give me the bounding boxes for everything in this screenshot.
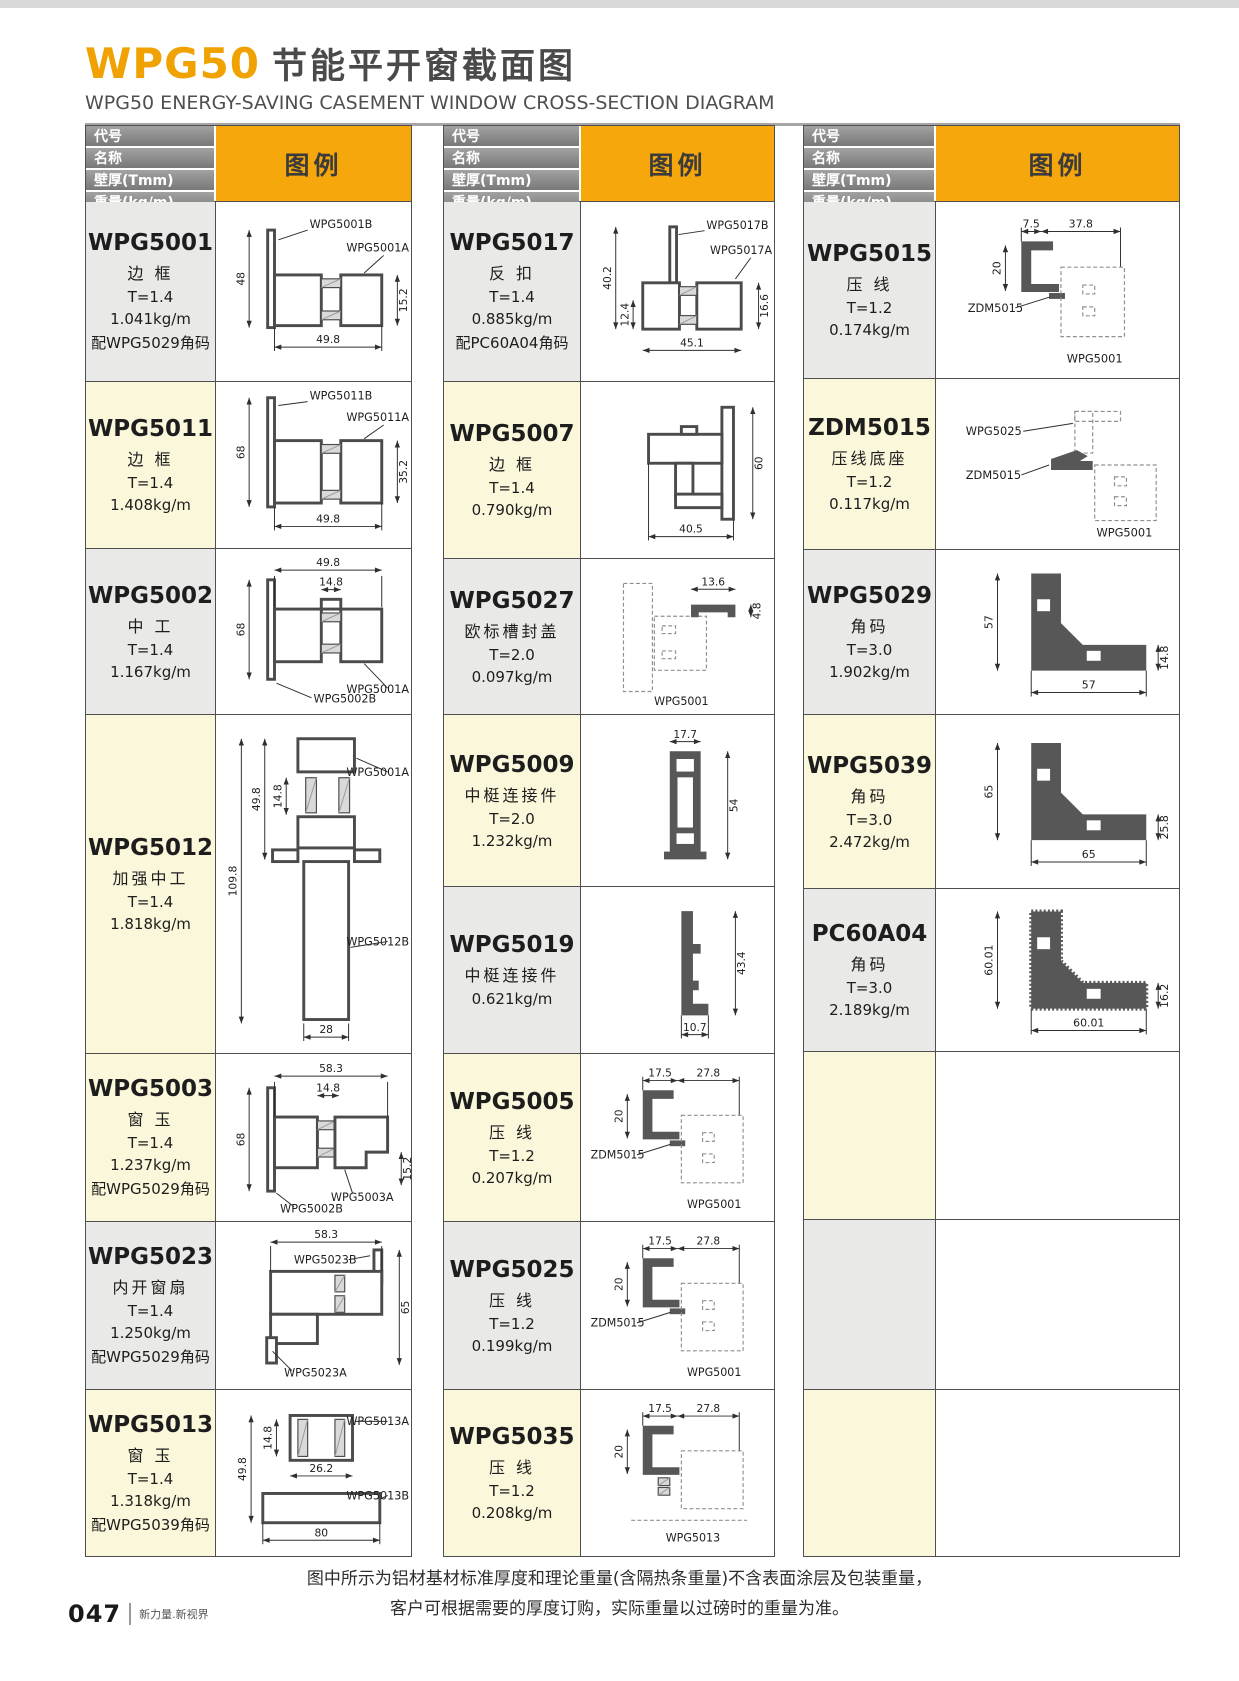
svg-text:57: 57 bbox=[1082, 679, 1096, 692]
page-subtitle: WPG50 ENERGY-SAVING CASEMENT WINDOW CROS… bbox=[85, 92, 1180, 114]
profile-info-cell: PC60A04角码T=3.02.189kg/m bbox=[804, 889, 936, 1051]
profile-info-cell bbox=[804, 1390, 936, 1556]
header-label-cells: 代号名称壁厚(Tmm)重量(kg/m) bbox=[804, 126, 936, 201]
profile-code: WPG5029 bbox=[807, 583, 932, 609]
profile-thickness: T=1.2 bbox=[847, 299, 893, 317]
profile-info-cell: WPG5007边 框T=1.40.790kg/m bbox=[444, 382, 581, 558]
profile-code: WPG5012 bbox=[88, 835, 213, 861]
profile-weight: 0.174kg/m bbox=[829, 321, 910, 339]
profile-name: 窗 玉 bbox=[127, 1442, 173, 1466]
profile-code: WPG5039 bbox=[807, 753, 932, 779]
profile-name: 角码 bbox=[850, 783, 888, 807]
profile-code: WPG5013 bbox=[88, 1412, 213, 1438]
svg-text:WPG5013B: WPG5013B bbox=[346, 1489, 409, 1502]
table-header: 代号名称壁厚(Tmm)重量(kg/m)图例 bbox=[86, 126, 411, 201]
svg-text:WPG5011B: WPG5011B bbox=[310, 390, 373, 403]
profile-thickness: T=1.4 bbox=[128, 474, 174, 492]
svg-text:58.3: 58.3 bbox=[314, 1228, 338, 1241]
svg-text:WPG5001A: WPG5001A bbox=[346, 683, 409, 696]
profile-thickness: T=3.0 bbox=[847, 811, 893, 829]
svg-text:54: 54 bbox=[727, 798, 740, 812]
profile-name: 反 扣 bbox=[489, 260, 535, 284]
svg-text:WPG5001A: WPG5001A bbox=[346, 242, 409, 255]
profile-info-cell: WPG5035压 线T=1.20.208kg/m bbox=[444, 1390, 581, 1556]
svg-text:20: 20 bbox=[612, 1277, 625, 1291]
svg-text:49.8: 49.8 bbox=[316, 333, 340, 346]
top-strip bbox=[0, 0, 1239, 8]
svg-text:40.2: 40.2 bbox=[601, 266, 614, 290]
profile-row: ZDM5015压线底座T=1.20.117kg/mWPG5025ZDM5015W… bbox=[804, 378, 1179, 549]
profile-info-cell: WPG5019中梃连接件0.621kg/m bbox=[444, 887, 581, 1053]
svg-text:14.8: 14.8 bbox=[316, 1082, 340, 1095]
profile-row: WPG5012加强中工T=1.41.818kg/m109.849.814.828… bbox=[86, 714, 411, 1053]
svg-text:28: 28 bbox=[319, 1023, 333, 1036]
header-cell: 代号 bbox=[804, 126, 934, 148]
profile-code: WPG5019 bbox=[449, 932, 574, 958]
header-cell: 壁厚(Tmm) bbox=[804, 170, 934, 192]
profile-code: PC60A04 bbox=[812, 921, 928, 947]
profile-name: 窗 玉 bbox=[127, 1106, 173, 1130]
profile-table-1: 代号名称壁厚(Tmm)重量(kg/m)图例WPG5001边 框T=1.41.04… bbox=[85, 125, 412, 1557]
header-cell: 壁厚(Tmm) bbox=[444, 170, 579, 192]
profile-name: 中梃连接件 bbox=[464, 962, 559, 986]
svg-text:WPG5001: WPG5001 bbox=[654, 695, 708, 708]
cross-section-diagram: 17.527.820WPG5013 bbox=[581, 1390, 774, 1556]
catalog-page: WPG50 节能平开窗截面图 WPG50 ENERGY-SAVING CASEM… bbox=[0, 0, 1239, 1681]
profile-info-cell: WPG5002中 工T=1.41.167kg/m bbox=[86, 549, 216, 714]
profile-corner-note: 配PC60A04角码 bbox=[456, 332, 569, 353]
profile-thickness: T=3.0 bbox=[847, 979, 893, 997]
profile-row: WPG5007边 框T=1.40.790kg/m6040.5 bbox=[444, 381, 774, 558]
profile-info-cell: WPG5029角码T=3.01.902kg/m bbox=[804, 550, 936, 714]
cross-section-diagram: 58.365WPG5023BWPG5023A bbox=[216, 1222, 411, 1389]
svg-text:65: 65 bbox=[983, 785, 996, 799]
profile-code: WPG5017 bbox=[449, 230, 574, 256]
svg-text:60.01: 60.01 bbox=[1073, 1017, 1104, 1030]
svg-text:27.8: 27.8 bbox=[697, 1067, 721, 1080]
profile-name: 压 线 bbox=[489, 1454, 535, 1478]
svg-text:60: 60 bbox=[752, 456, 765, 470]
profile-thickness: T=1.4 bbox=[128, 893, 174, 911]
svg-text:WPG5023B: WPG5023B bbox=[294, 1254, 357, 1267]
profile-weight: 0.097kg/m bbox=[472, 668, 553, 686]
svg-text:65: 65 bbox=[1082, 848, 1096, 861]
profile-info-cell: WPG5001边 框T=1.41.041kg/m配WPG5029角码 bbox=[86, 202, 216, 381]
svg-text:17.5: 17.5 bbox=[648, 1235, 672, 1248]
cross-section-diagram: 40.212.445.116.6WPG5017BWPG5017A bbox=[581, 202, 774, 381]
page-title: 节能平开窗截面图 bbox=[272, 38, 576, 89]
cross-section-diagram: 49.814.868WPG5002BWPG5001A bbox=[216, 549, 411, 714]
header-cell: 名称 bbox=[804, 148, 934, 170]
profile-weight: 1.818kg/m bbox=[110, 915, 191, 933]
cross-section-diagram: 13.64.8WPG5001 bbox=[581, 559, 774, 714]
svg-text:16.2: 16.2 bbox=[1158, 984, 1171, 1008]
svg-text:49.8: 49.8 bbox=[250, 787, 263, 811]
svg-text:49.8: 49.8 bbox=[316, 556, 340, 569]
profile-weight: 0.199kg/m bbox=[472, 1337, 553, 1355]
profile-row: WPG5005压 线T=1.20.207kg/m17.527.820ZDM501… bbox=[444, 1053, 774, 1221]
profile-code: ZDM5015 bbox=[808, 415, 931, 441]
profile-name: 边 框 bbox=[489, 451, 535, 475]
profile-name: 压线底座 bbox=[831, 445, 907, 469]
profile-name: 角码 bbox=[850, 951, 888, 975]
profile-name: 内开窗扇 bbox=[112, 1274, 188, 1298]
svg-text:WPG5001: WPG5001 bbox=[687, 1198, 741, 1211]
legend-header: 图例 bbox=[216, 126, 411, 201]
profile-weight: 1.041kg/m bbox=[110, 310, 191, 328]
table-header: 代号名称壁厚(Tmm)重量(kg/m)图例 bbox=[444, 126, 774, 201]
svg-text:60.01: 60.01 bbox=[983, 944, 996, 975]
svg-text:25.8: 25.8 bbox=[1158, 815, 1171, 839]
svg-text:35.2: 35.2 bbox=[397, 460, 410, 484]
cross-section-diagram: 7.537.820ZDM5015WPG5001 bbox=[936, 202, 1179, 378]
svg-text:10.7: 10.7 bbox=[683, 1021, 707, 1034]
svg-text:40.5: 40.5 bbox=[679, 523, 703, 536]
svg-text:20: 20 bbox=[612, 1445, 625, 1459]
legend-header: 图例 bbox=[936, 126, 1179, 201]
profile-thickness: T=1.4 bbox=[128, 288, 174, 306]
profile-table-2: 代号名称壁厚(Tmm)重量(kg/m)图例WPG5017反 扣T=1.40.88… bbox=[443, 125, 775, 1557]
cross-section-diagram: 6525.865 bbox=[936, 715, 1179, 888]
svg-text:58.3: 58.3 bbox=[319, 1062, 343, 1075]
profile-corner-note: 配WPG5029角码 bbox=[91, 1178, 210, 1199]
svg-text:80: 80 bbox=[314, 1526, 328, 1539]
profile-row: WPG5029角码T=3.01.902kg/m5714.857 bbox=[804, 549, 1179, 714]
profile-row: WPG5025压 线T=1.20.199kg/m17.527.820ZDM501… bbox=[444, 1221, 774, 1389]
profile-info-cell: WPG5005压 线T=1.20.207kg/m bbox=[444, 1054, 581, 1221]
cross-section-diagram: 58.314.86815.2WPG5003AWPG5002B bbox=[216, 1054, 411, 1221]
profile-weight: 1.408kg/m bbox=[110, 496, 191, 514]
profile-name: 边 框 bbox=[127, 260, 173, 284]
profile-weight: 1.318kg/m bbox=[110, 1492, 191, 1510]
profile-row: WPG5009中梃连接件T=2.01.232kg/m17.754 bbox=[444, 714, 774, 886]
svg-text:20: 20 bbox=[612, 1109, 625, 1123]
svg-text:WPG5002B: WPG5002B bbox=[280, 1203, 343, 1216]
page-title-row: WPG50 节能平开窗截面图 bbox=[85, 38, 1180, 89]
series-code: WPG50 bbox=[85, 39, 260, 88]
tables: 代号名称壁厚(Tmm)重量(kg/m)图例WPG5001边 框T=1.41.04… bbox=[85, 125, 1180, 1557]
profile-name: 压 线 bbox=[489, 1287, 535, 1311]
header-cell: 代号 bbox=[444, 126, 579, 148]
profile-name: 中 工 bbox=[127, 613, 173, 637]
profile-info-cell: WPG5027欧标槽封盖T=2.00.097kg/m bbox=[444, 559, 581, 714]
svg-text:WPG5013: WPG5013 bbox=[666, 1532, 720, 1545]
profile-row: WPG5017反 扣T=1.40.885kg/m配PC60A04角码40.212… bbox=[444, 201, 774, 381]
profile-info-cell: WPG5011边 框T=1.41.408kg/m bbox=[86, 382, 216, 548]
footer-divider bbox=[129, 1603, 131, 1625]
svg-text:45.1: 45.1 bbox=[680, 337, 704, 350]
profile-info-cell bbox=[804, 1052, 936, 1219]
svg-text:14.8: 14.8 bbox=[319, 576, 343, 589]
profile-weight: 0.207kg/m bbox=[472, 1169, 553, 1187]
cross-section-diagram: 17.754 bbox=[581, 715, 774, 886]
header-label-cells: 代号名称壁厚(Tmm)重量(kg/m) bbox=[444, 126, 581, 201]
profile-row: WPG5023内开窗扇T=1.41.250kg/m配WPG5029角码58.36… bbox=[86, 1221, 411, 1389]
profile-code: WPG5023 bbox=[88, 1244, 213, 1270]
profile-row: WPG5027欧标槽封盖T=2.00.097kg/m13.64.8WPG5001 bbox=[444, 558, 774, 714]
profile-row bbox=[804, 1219, 1179, 1389]
footnote-line1: 图中所示为铝材基材标准厚度和理论重量(含隔热条重量)不含表面涂层及包装重量， bbox=[0, 1565, 1239, 1595]
cross-section-diagram: 109.849.814.828WPG5001AWPG5012B bbox=[216, 715, 411, 1053]
profile-code: WPG5011 bbox=[88, 416, 213, 442]
profile-weight: 2.189kg/m bbox=[829, 1001, 910, 1019]
svg-text:17.7: 17.7 bbox=[673, 728, 697, 741]
cross-section-diagram: 43.410.7 bbox=[581, 887, 774, 1053]
profile-row: WPG5013窗 玉T=1.41.318kg/m配WPG5039角码14.849… bbox=[86, 1389, 411, 1556]
profile-row: WPG5003窗 玉T=1.41.237kg/m配WPG5029角码58.314… bbox=[86, 1053, 411, 1221]
svg-text:17.5: 17.5 bbox=[648, 1402, 672, 1415]
profile-code: WPG5027 bbox=[449, 588, 574, 614]
svg-text:57: 57 bbox=[983, 615, 996, 629]
page-number: 047 bbox=[68, 1600, 121, 1628]
svg-text:WPG5001B: WPG5001B bbox=[310, 218, 373, 231]
footer-tagline: 新力量.新视界 bbox=[139, 1606, 209, 1622]
cross-section-diagram bbox=[936, 1220, 1179, 1389]
profile-name: 角码 bbox=[850, 613, 888, 637]
profile-weight: 1.902kg/m bbox=[829, 663, 910, 681]
cross-section-diagram: 4849.815.2WPG5001BWPG5001A bbox=[216, 202, 411, 381]
svg-text:37.8: 37.8 bbox=[1069, 218, 1093, 231]
profile-info-cell: WPG5017反 扣T=1.40.885kg/m配PC60A04角码 bbox=[444, 202, 581, 381]
svg-text:WPG5025: WPG5025 bbox=[966, 424, 1022, 438]
svg-text:109.8: 109.8 bbox=[226, 866, 239, 897]
svg-text:WPG5011A: WPG5011A bbox=[346, 411, 409, 424]
svg-text:16.6: 16.6 bbox=[758, 294, 771, 318]
cross-section-diagram: 6040.5 bbox=[581, 382, 774, 558]
profile-thickness: T=1.4 bbox=[489, 288, 535, 306]
profile-thickness: T=1.4 bbox=[128, 1134, 174, 1152]
profile-info-cell: WPG5009中梃连接件T=2.01.232kg/m bbox=[444, 715, 581, 886]
profile-thickness: T=1.4 bbox=[489, 479, 535, 497]
profile-info-cell: WPG5023内开窗扇T=1.41.250kg/m配WPG5029角码 bbox=[86, 1222, 216, 1389]
profile-weight: 0.117kg/m bbox=[829, 495, 910, 513]
profile-weight: 0.790kg/m bbox=[472, 501, 553, 519]
profile-thickness: T=1.4 bbox=[128, 1302, 174, 1320]
header-label-cells: 代号名称壁厚(Tmm)重量(kg/m) bbox=[86, 126, 216, 201]
profile-weight: 0.208kg/m bbox=[472, 1504, 553, 1522]
svg-text:15.2: 15.2 bbox=[397, 288, 410, 312]
profile-code: WPG5007 bbox=[449, 421, 574, 447]
profile-thickness: T=1.4 bbox=[128, 641, 174, 659]
svg-text:14.8: 14.8 bbox=[262, 1426, 275, 1450]
profile-corner-note: 配WPG5039角码 bbox=[91, 1514, 210, 1535]
profile-code: WPG5025 bbox=[449, 1257, 574, 1283]
svg-text:ZDM5015: ZDM5015 bbox=[591, 1317, 645, 1330]
svg-text:48: 48 bbox=[234, 272, 247, 286]
cross-section-diagram bbox=[936, 1390, 1179, 1556]
svg-text:4.8: 4.8 bbox=[750, 602, 763, 619]
svg-text:14.8: 14.8 bbox=[271, 784, 284, 808]
profile-code: WPG5002 bbox=[88, 583, 213, 609]
cross-section-diagram: 6835.249.8WPG5011BWPG5011A bbox=[216, 382, 411, 548]
svg-text:15.2: 15.2 bbox=[401, 1157, 411, 1181]
cross-section-diagram: 17.527.820ZDM5015WPG5001 bbox=[581, 1222, 774, 1389]
svg-text:WPG5001: WPG5001 bbox=[1067, 351, 1123, 365]
profile-row: PC60A04角码T=3.02.189kg/m60.0116.260.01 bbox=[804, 888, 1179, 1051]
cross-section-diagram: WPG5025ZDM5015WPG5001 bbox=[936, 379, 1179, 549]
svg-text:WPG5023A: WPG5023A bbox=[284, 1367, 347, 1380]
svg-text:12.4: 12.4 bbox=[618, 303, 631, 327]
table-header: 代号名称壁厚(Tmm)重量(kg/m)图例 bbox=[804, 126, 1179, 201]
profile-row bbox=[804, 1051, 1179, 1219]
svg-text:26.2: 26.2 bbox=[309, 1462, 333, 1475]
profile-row: WPG5001边 框T=1.41.041kg/m配WPG5029角码4849.8… bbox=[86, 201, 411, 381]
profile-name: 压 线 bbox=[846, 271, 892, 295]
cross-section-diagram bbox=[936, 1052, 1179, 1219]
profile-corner-note: 配WPG5029角码 bbox=[91, 1346, 210, 1367]
profile-row: WPG5039角码T=3.02.472kg/m6525.865 bbox=[804, 714, 1179, 888]
profile-name: 加强中工 bbox=[112, 865, 188, 889]
profile-name: 中梃连接件 bbox=[464, 782, 559, 806]
profile-info-cell: WPG5039角码T=3.02.472kg/m bbox=[804, 715, 936, 888]
cross-section-diagram: 14.849.826.280WPG5013AWPG5013B bbox=[216, 1390, 411, 1556]
profile-info-cell: WPG5003窗 玉T=1.41.237kg/m配WPG5029角码 bbox=[86, 1054, 216, 1221]
svg-text:WPG5001: WPG5001 bbox=[1096, 525, 1152, 539]
profile-info-cell bbox=[804, 1220, 936, 1389]
svg-text:17.5: 17.5 bbox=[648, 1067, 672, 1080]
svg-text:68: 68 bbox=[234, 445, 247, 459]
profile-weight: 2.472kg/m bbox=[829, 833, 910, 851]
svg-text:68: 68 bbox=[234, 623, 247, 637]
profile-thickness: T=1.4 bbox=[128, 1470, 174, 1488]
svg-text:ZDM5015: ZDM5015 bbox=[966, 468, 1021, 482]
profile-weight: 1.237kg/m bbox=[110, 1156, 191, 1174]
profile-thickness: T=1.2 bbox=[847, 473, 893, 491]
svg-text:WPG5001: WPG5001 bbox=[687, 1366, 741, 1379]
page-header: WPG50 节能平开窗截面图 WPG50 ENERGY-SAVING CASEM… bbox=[85, 38, 1180, 126]
svg-text:27.8: 27.8 bbox=[697, 1235, 721, 1248]
svg-text:14.8: 14.8 bbox=[1158, 646, 1171, 670]
profile-info-cell: WPG5025压 线T=1.20.199kg/m bbox=[444, 1222, 581, 1389]
profile-info-cell: WPG5013窗 玉T=1.41.318kg/m配WPG5039角码 bbox=[86, 1390, 216, 1556]
profile-row bbox=[804, 1389, 1179, 1556]
svg-text:27.8: 27.8 bbox=[697, 1402, 721, 1415]
profile-code: WPG5001 bbox=[88, 230, 213, 256]
profile-name: 边 框 bbox=[127, 446, 173, 470]
svg-text:20: 20 bbox=[990, 261, 1003, 275]
profile-row: WPG5002中 工T=1.41.167kg/m49.814.868WPG500… bbox=[86, 548, 411, 714]
profile-thickness: T=2.0 bbox=[489, 646, 535, 664]
svg-text:WPG5017A: WPG5017A bbox=[710, 244, 772, 257]
header-cell: 代号 bbox=[86, 126, 214, 148]
svg-text:7.5: 7.5 bbox=[1023, 218, 1040, 231]
header-cell: 壁厚(Tmm) bbox=[86, 170, 214, 192]
svg-text:43.4: 43.4 bbox=[735, 951, 748, 975]
svg-text:ZDM5015: ZDM5015 bbox=[591, 1149, 645, 1162]
svg-text:ZDM5015: ZDM5015 bbox=[968, 301, 1023, 315]
profile-row: WPG5011边 框T=1.41.408kg/m6835.249.8WPG501… bbox=[86, 381, 411, 548]
profile-thickness: T=2.0 bbox=[489, 810, 535, 828]
cross-section-diagram: 60.0116.260.01 bbox=[936, 889, 1179, 1051]
profile-thickness: T=3.0 bbox=[847, 641, 893, 659]
profile-thickness: T=1.2 bbox=[489, 1482, 535, 1500]
profile-weight: 1.232kg/m bbox=[472, 832, 553, 850]
header-cell: 名称 bbox=[86, 148, 214, 170]
svg-text:13.6: 13.6 bbox=[701, 575, 725, 588]
cross-section-diagram: 5714.857 bbox=[936, 550, 1179, 714]
profile-thickness: T=1.2 bbox=[489, 1315, 535, 1333]
cross-section-diagram: 17.527.820ZDM5015WPG5001 bbox=[581, 1054, 774, 1221]
profile-thickness: T=1.2 bbox=[489, 1147, 535, 1165]
page-footer: 047 新力量.新视界 bbox=[68, 1600, 209, 1628]
svg-text:68: 68 bbox=[234, 1132, 247, 1146]
profile-row: WPG5035压 线T=1.20.208kg/m17.527.820WPG501… bbox=[444, 1389, 774, 1556]
svg-text:49.8: 49.8 bbox=[236, 1457, 249, 1481]
profile-weight: 1.167kg/m bbox=[110, 663, 191, 681]
svg-text:WPG5017B: WPG5017B bbox=[706, 219, 768, 232]
profile-row: WPG5015压 线T=1.20.174kg/m7.537.820ZDM5015… bbox=[804, 201, 1179, 378]
profile-weight: 1.250kg/m bbox=[110, 1324, 191, 1342]
header-cell: 名称 bbox=[444, 148, 579, 170]
profile-corner-note: 配WPG5029角码 bbox=[91, 332, 210, 353]
profile-table-3: 代号名称壁厚(Tmm)重量(kg/m)图例WPG5015压 线T=1.20.17… bbox=[803, 125, 1180, 1557]
profile-weight: 0.885kg/m bbox=[472, 310, 553, 328]
profile-code: WPG5005 bbox=[449, 1089, 574, 1115]
profile-info-cell: WPG5015压 线T=1.20.174kg/m bbox=[804, 202, 936, 378]
profile-info-cell: ZDM5015压线底座T=1.20.117kg/m bbox=[804, 379, 936, 549]
profile-code: WPG5015 bbox=[807, 241, 932, 267]
legend-header: 图例 bbox=[581, 126, 774, 201]
profile-name: 压 线 bbox=[489, 1119, 535, 1143]
svg-text:65: 65 bbox=[399, 1301, 411, 1315]
profile-code: WPG5009 bbox=[449, 752, 574, 778]
profile-info-cell: WPG5012加强中工T=1.41.818kg/m bbox=[86, 715, 216, 1053]
profile-code: WPG5035 bbox=[449, 1424, 574, 1450]
profile-code: WPG5003 bbox=[88, 1076, 213, 1102]
profile-row: WPG5019中梃连接件0.621kg/m43.410.7 bbox=[444, 886, 774, 1053]
profile-name: 欧标槽封盖 bbox=[464, 618, 559, 642]
svg-text:49.8: 49.8 bbox=[316, 513, 340, 526]
profile-weight: 0.621kg/m bbox=[472, 990, 553, 1008]
